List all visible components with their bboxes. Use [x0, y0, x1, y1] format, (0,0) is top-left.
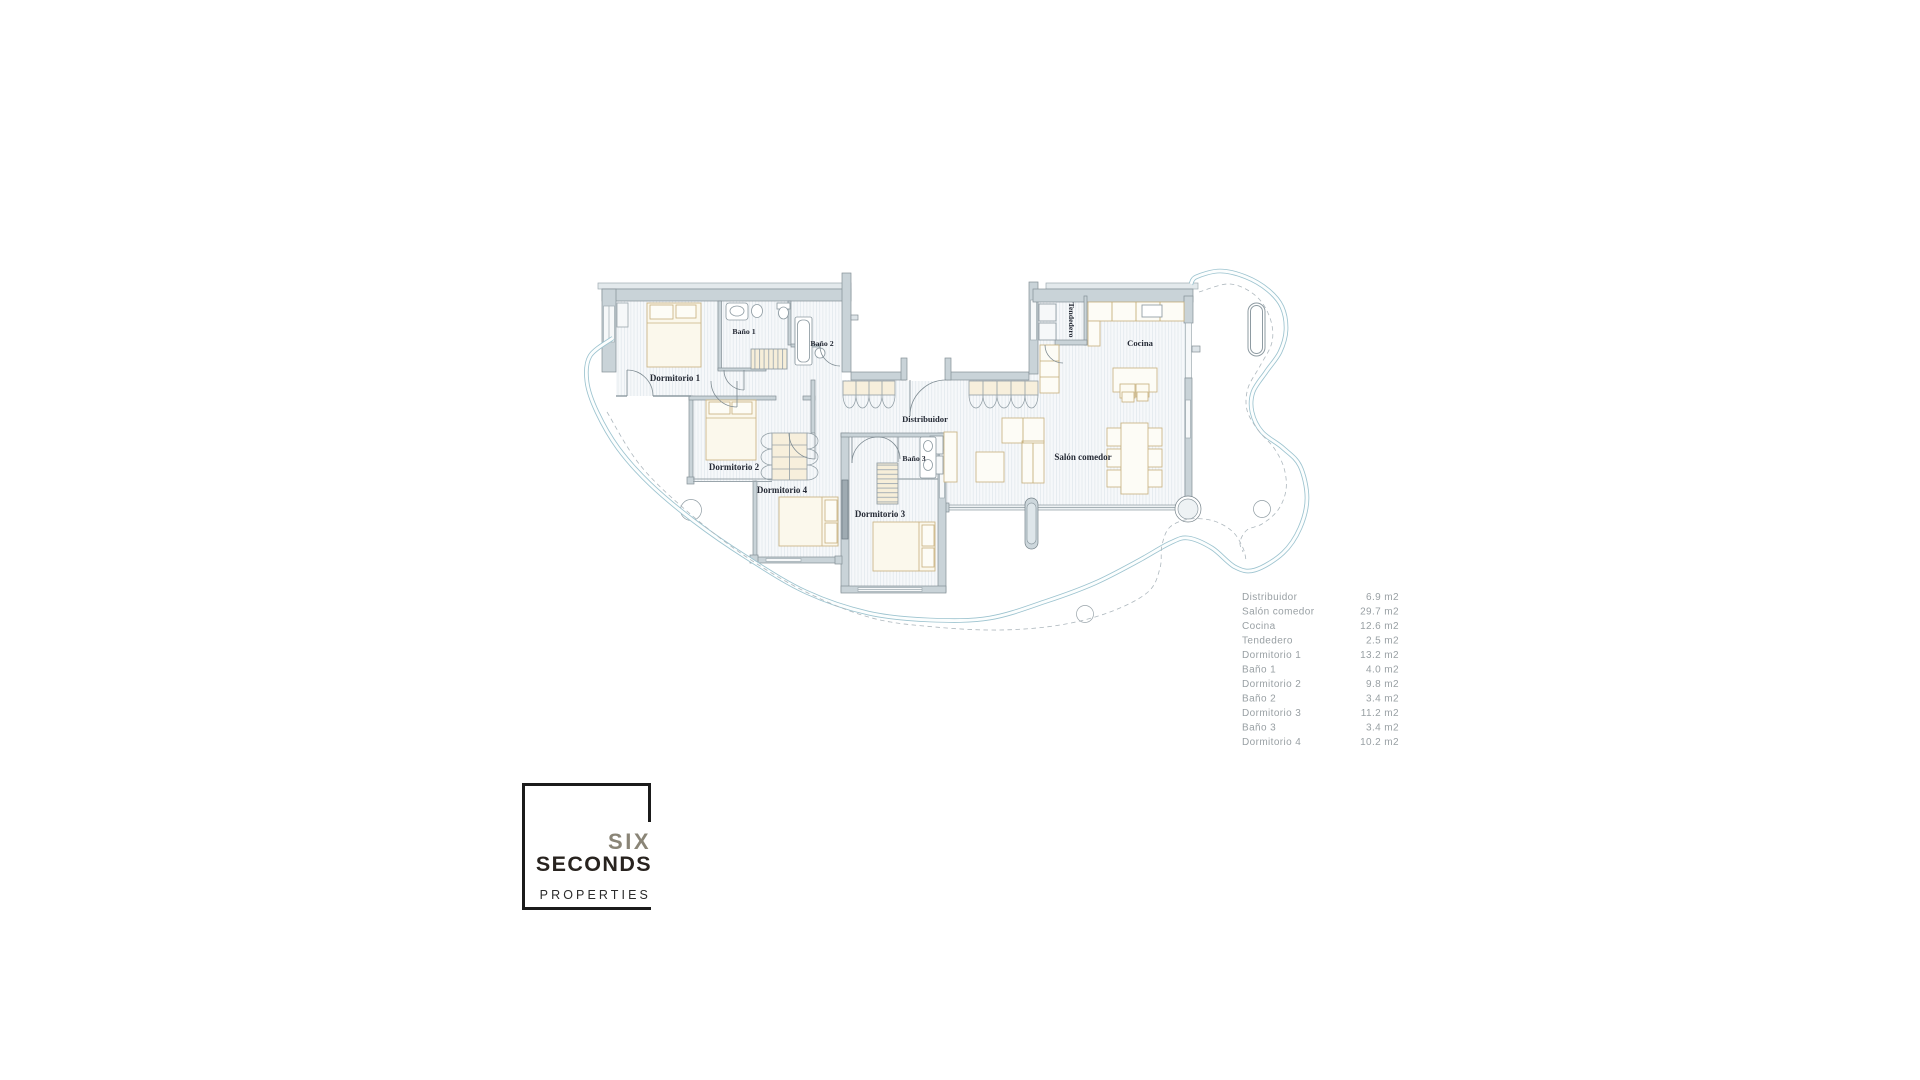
svg-text:Baño 3: Baño 3	[1242, 723, 1276, 734]
svg-text:2.5 m2: 2.5 m2	[1366, 636, 1399, 647]
svg-text:13.2 m2: 13.2 m2	[1360, 650, 1399, 661]
svg-text:Distribuidor: Distribuidor	[902, 414, 948, 424]
svg-text:Baño 1: Baño 1	[732, 327, 755, 336]
svg-text:9.8 m2: 9.8 m2	[1366, 679, 1399, 690]
svg-text:Tendedero: Tendedero	[1242, 636, 1293, 647]
svg-text:Dormitorio 1: Dormitorio 1	[650, 373, 701, 383]
svg-text:Dormitorio 4: Dormitorio 4	[757, 485, 808, 495]
svg-text:Baño 2: Baño 2	[1242, 694, 1276, 705]
svg-text:3.4 m2: 3.4 m2	[1366, 723, 1399, 734]
svg-text:Baño 3: Baño 3	[902, 454, 925, 463]
svg-text:SIX: SIX	[608, 829, 651, 854]
svg-text:Dormitorio 4: Dormitorio 4	[1242, 737, 1301, 748]
svg-text:Distribuidor: Distribuidor	[1242, 592, 1298, 603]
svg-text:Dormitorio 2: Dormitorio 2	[1242, 679, 1301, 690]
svg-text:12.6 m2: 12.6 m2	[1360, 621, 1399, 632]
svg-text:Dormitorio 2: Dormitorio 2	[709, 462, 760, 472]
svg-text:4.0 m2: 4.0 m2	[1366, 665, 1399, 676]
svg-text:Cocina: Cocina	[1127, 338, 1153, 348]
svg-text:Baño 2: Baño 2	[810, 339, 833, 348]
svg-text:Salón comedor: Salón comedor	[1242, 607, 1315, 618]
svg-text:6.9 m2: 6.9 m2	[1366, 592, 1399, 603]
svg-text:11.2 m2: 11.2 m2	[1361, 708, 1399, 719]
svg-text:29.7 m2: 29.7 m2	[1360, 607, 1399, 618]
svg-text:Dormitorio 3: Dormitorio 3	[855, 509, 906, 519]
svg-text:Baño 1: Baño 1	[1242, 665, 1276, 676]
svg-text:Dormitorio 3: Dormitorio 3	[1242, 708, 1301, 719]
svg-text:3.4 m2: 3.4 m2	[1366, 694, 1399, 705]
svg-text:Cocina: Cocina	[1242, 621, 1276, 632]
svg-text:Tendedero: Tendedero	[1067, 302, 1076, 337]
svg-text:SECONDS: SECONDS	[536, 852, 652, 876]
svg-text:10.2 m2: 10.2 m2	[1360, 737, 1399, 748]
svg-text:Salón comedor: Salón comedor	[1054, 452, 1111, 462]
svg-text:PROPERTIES: PROPERTIES	[540, 888, 651, 902]
svg-text:Dormitorio 1: Dormitorio 1	[1242, 650, 1301, 661]
